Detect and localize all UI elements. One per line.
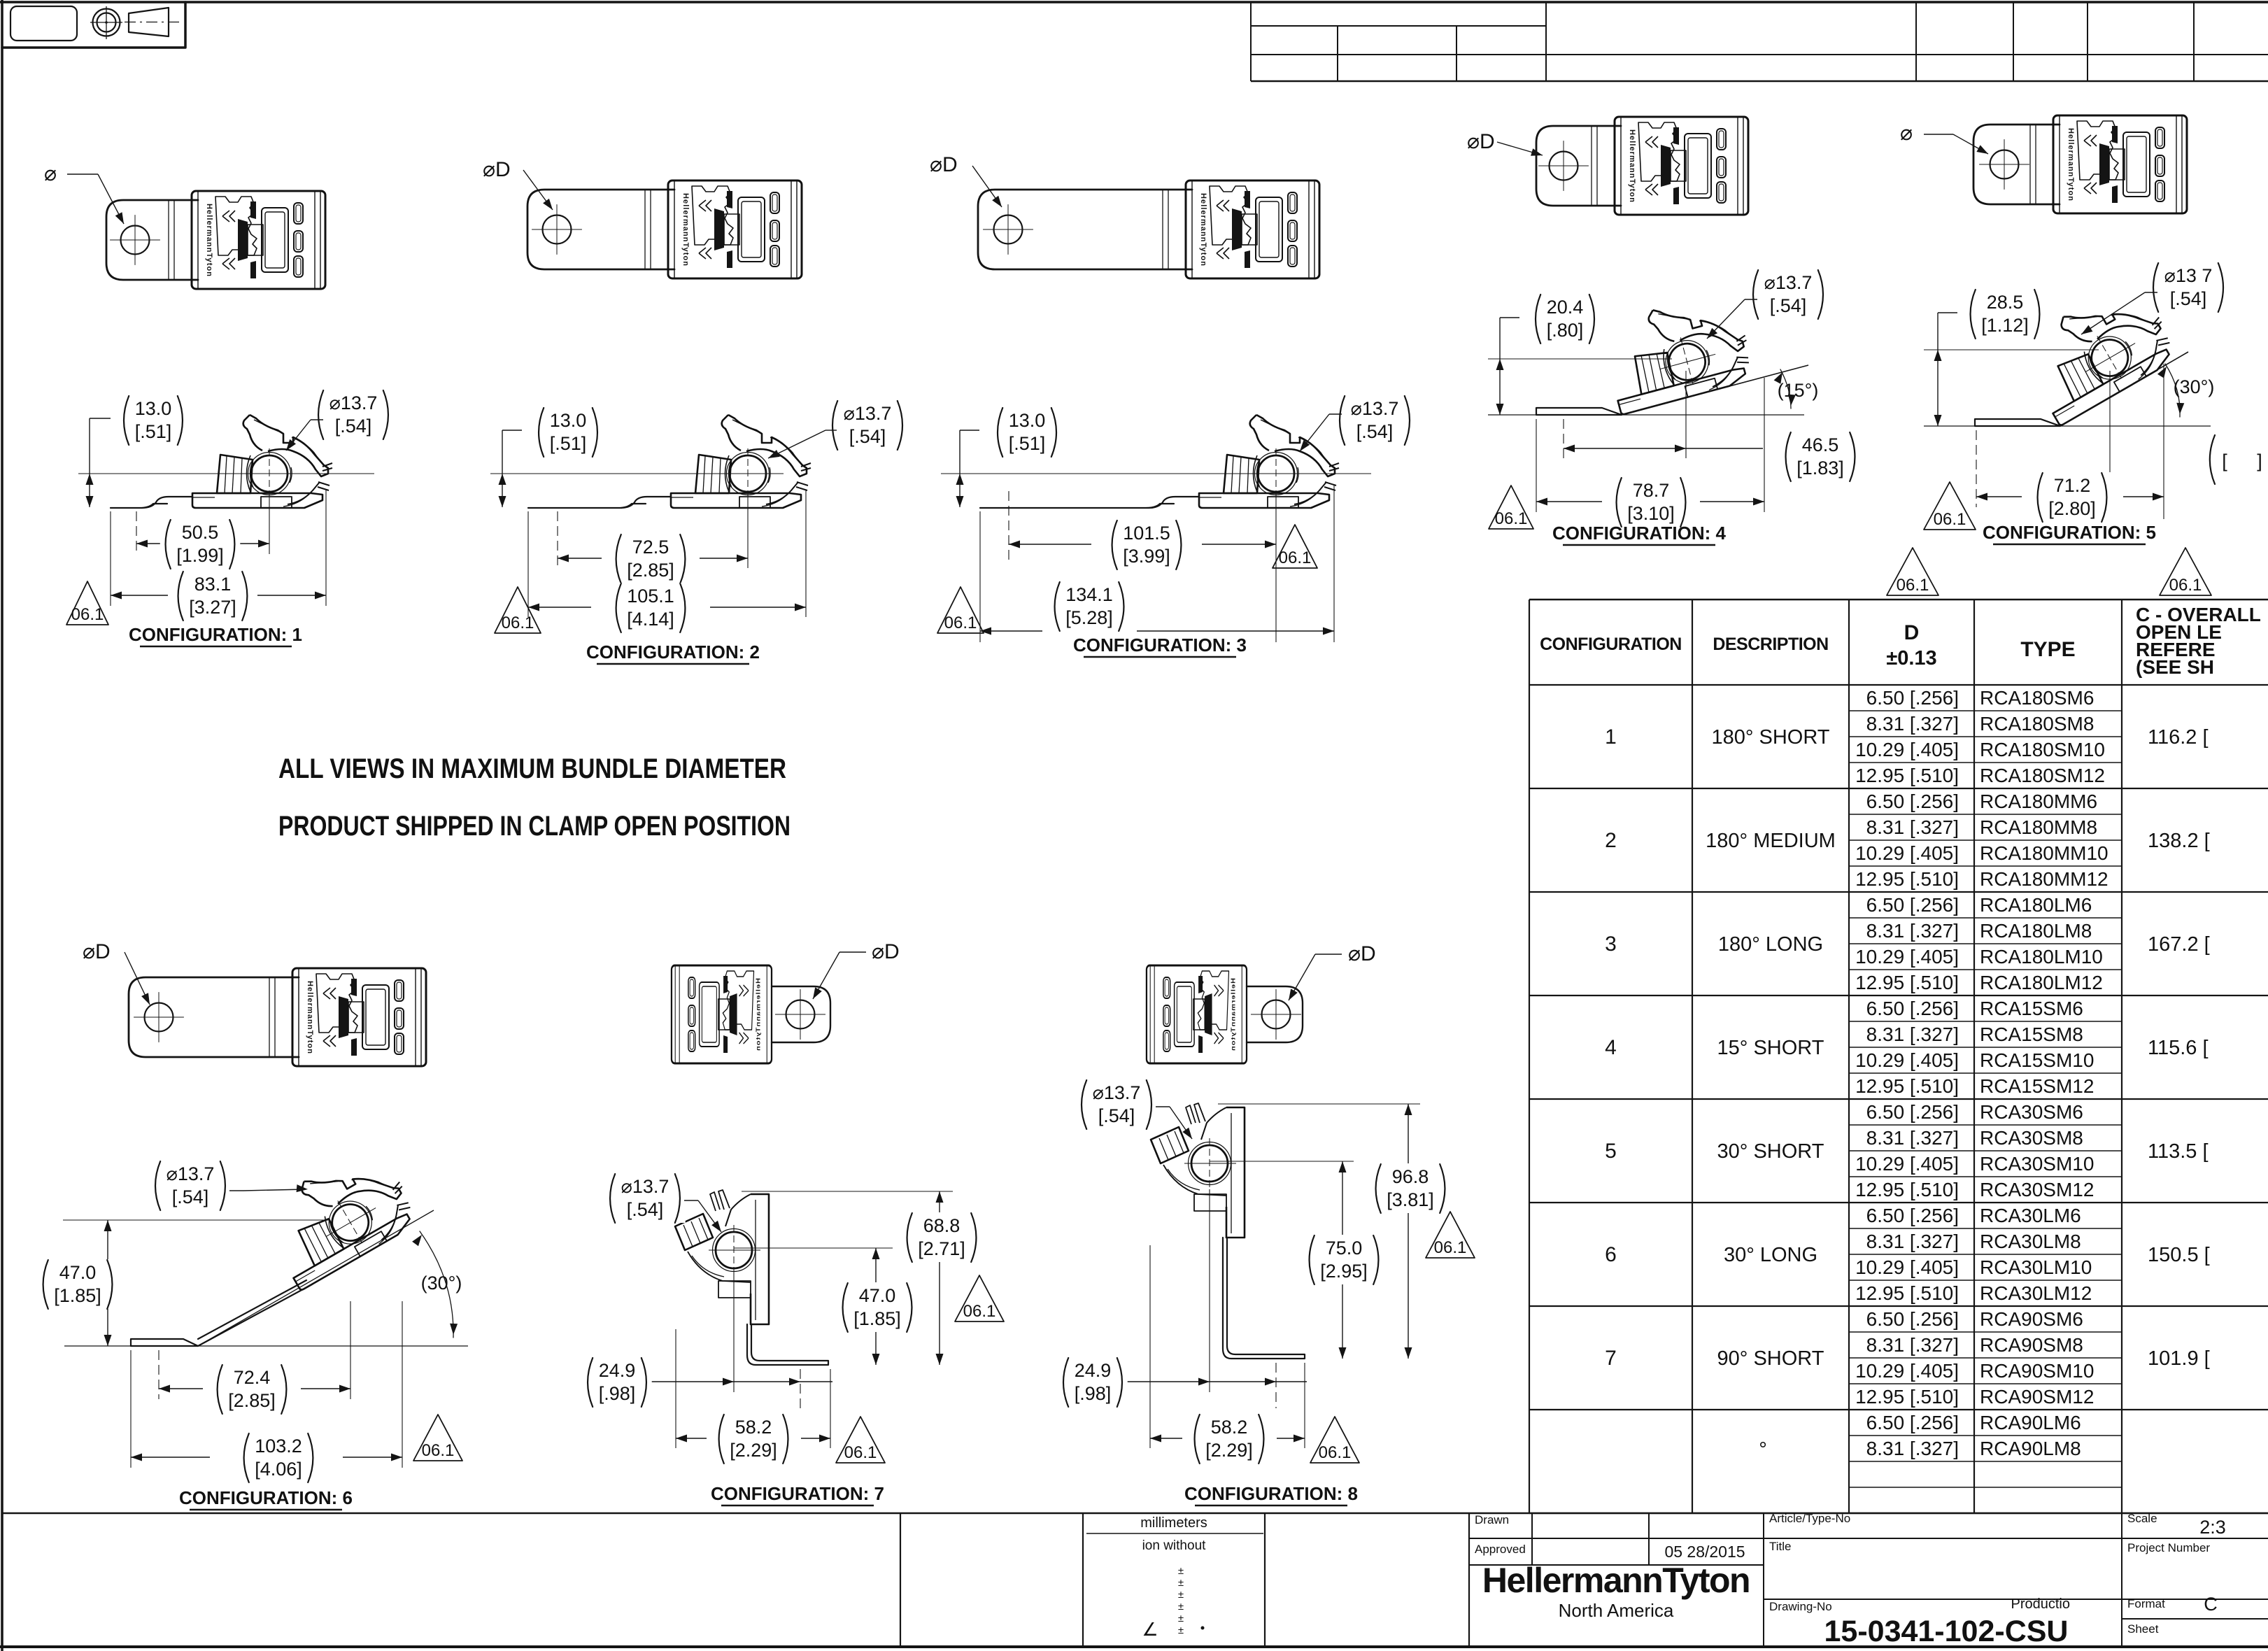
svg-text:[2.95]: [2.95] bbox=[1320, 1261, 1368, 1282]
svg-text:78.7: 78.7 bbox=[1633, 480, 1670, 501]
svg-text:06.1: 06.1 bbox=[422, 1441, 455, 1460]
svg-text:6.50 [.256]: 6.50 [.256] bbox=[1866, 894, 1959, 916]
svg-text:CONFIGURATION: 5: CONFIGURATION: 5 bbox=[1983, 522, 2156, 543]
svg-text:[.80]: [.80] bbox=[1547, 320, 1584, 341]
svg-text:Article/Type-No: Article/Type-No bbox=[1769, 1512, 1850, 1525]
svg-text:[1.85]: [1.85] bbox=[54, 1285, 101, 1306]
svg-text:10.29 [.405]: 10.29 [.405] bbox=[1855, 1256, 1959, 1278]
svg-text:12.95 [.510]: 12.95 [.510] bbox=[1855, 1282, 1959, 1304]
svg-text:6: 6 bbox=[1605, 1243, 1617, 1266]
svg-text:115.6 [: 115.6 [ bbox=[2148, 1037, 2209, 1059]
svg-text:RCA90SM12: RCA90SM12 bbox=[1980, 1386, 2094, 1408]
svg-text:[1.85]: [1.85] bbox=[853, 1308, 901, 1329]
svg-text:⌀D: ⌀D bbox=[1348, 942, 1376, 965]
svg-text:RCA180LM12: RCA180LM12 bbox=[1980, 972, 2103, 993]
svg-text:6.50 [.256]: 6.50 [.256] bbox=[1866, 791, 1959, 812]
svg-text:[4.06]: [4.06] bbox=[255, 1459, 302, 1480]
svg-text:RCA180MM8: RCA180MM8 bbox=[1980, 816, 2097, 838]
svg-text:(30°): (30°) bbox=[2174, 376, 2215, 397]
svg-text:180° MEDIUM: 180° MEDIUM bbox=[1706, 830, 1836, 852]
svg-text:12.95 [.510]: 12.95 [.510] bbox=[1855, 868, 1959, 890]
svg-text:8.31 [.327]: 8.31 [.327] bbox=[1866, 1127, 1959, 1149]
svg-text:Drawn: Drawn bbox=[1475, 1513, 1509, 1526]
svg-text:⌀13.7: ⌀13.7 bbox=[1764, 272, 1813, 293]
svg-text:North America: North America bbox=[1559, 1600, 1674, 1621]
svg-text:167.2 [: 167.2 [ bbox=[2148, 933, 2210, 956]
svg-text:±: ± bbox=[1178, 1601, 1184, 1613]
svg-text:75.0: 75.0 bbox=[1326, 1238, 1363, 1259]
svg-text:10.29 [.405]: 10.29 [.405] bbox=[1855, 739, 1959, 760]
svg-text:[.51]: [.51] bbox=[135, 421, 172, 442]
svg-text:⌀13 7: ⌀13 7 bbox=[2164, 265, 2213, 286]
svg-text:RCA30LM12: RCA30LM12 bbox=[1980, 1282, 2092, 1304]
svg-text:8.31 [.327]: 8.31 [.327] bbox=[1866, 1023, 1959, 1045]
svg-text:1: 1 bbox=[1605, 725, 1617, 749]
svg-text:[.51]: [.51] bbox=[1009, 433, 1046, 454]
svg-text:13.0: 13.0 bbox=[550, 410, 587, 431]
svg-text:138.2 [: 138.2 [ bbox=[2148, 830, 2210, 852]
svg-text:7: 7 bbox=[1605, 1347, 1617, 1370]
svg-text:±: ± bbox=[1178, 1577, 1184, 1589]
svg-text:±: ± bbox=[1178, 1565, 1184, 1577]
svg-text:Format: Format bbox=[2127, 1597, 2165, 1610]
svg-text:90° SHORT: 90° SHORT bbox=[1717, 1347, 1824, 1370]
svg-text:113.5 [: 113.5 [ bbox=[2148, 1140, 2209, 1163]
svg-text:134.1: 134.1 bbox=[1065, 584, 1113, 605]
svg-text:±: ± bbox=[1178, 1624, 1184, 1636]
svg-text:RCA15SM8: RCA15SM8 bbox=[1980, 1023, 2083, 1045]
svg-text:103.2: 103.2 bbox=[255, 1436, 302, 1457]
svg-text:2:3: 2:3 bbox=[2199, 1517, 2226, 1538]
svg-text:TYPE: TYPE bbox=[2020, 638, 2075, 661]
svg-text:⌀13.7: ⌀13.7 bbox=[844, 403, 892, 424]
svg-text:6.50 [.256]: 6.50 [.256] bbox=[1866, 1101, 1959, 1123]
svg-text:4: 4 bbox=[1605, 1036, 1617, 1059]
svg-text:RCA90LM8: RCA90LM8 bbox=[1980, 1438, 2081, 1459]
svg-text:CONFIGURATION: 7: CONFIGURATION: 7 bbox=[711, 1483, 884, 1504]
svg-text:millimeters: millimeters bbox=[1140, 1515, 1207, 1531]
svg-text:180° SHORT: 180° SHORT bbox=[1711, 726, 1829, 749]
svg-text:6.50 [.256]: 6.50 [.256] bbox=[1866, 998, 1959, 1019]
svg-text:RCA180SM10: RCA180SM10 bbox=[1980, 739, 2105, 760]
svg-text:68.8: 68.8 bbox=[923, 1215, 961, 1236]
svg-text:06.1: 06.1 bbox=[844, 1443, 877, 1462]
svg-text:[.54]: [.54] bbox=[1356, 421, 1394, 442]
svg-text:⌀13.7: ⌀13.7 bbox=[166, 1163, 215, 1184]
svg-text:[.54]: [.54] bbox=[849, 426, 886, 447]
svg-text:RCA90SM6: RCA90SM6 bbox=[1980, 1308, 2083, 1330]
svg-text:101.9 [: 101.9 [ bbox=[2148, 1347, 2210, 1370]
svg-text:6.50 [.256]: 6.50 [.256] bbox=[1866, 687, 1959, 709]
svg-text:72.4: 72.4 bbox=[234, 1367, 271, 1388]
svg-text:HellermannTyton: HellermannTyton bbox=[1482, 1561, 1750, 1600]
svg-text:[.54]: [.54] bbox=[1098, 1105, 1135, 1126]
svg-text:24.9: 24.9 bbox=[1075, 1360, 1112, 1381]
svg-text:8.31 [.327]: 8.31 [.327] bbox=[1866, 1334, 1959, 1356]
svg-text:3: 3 bbox=[1605, 933, 1617, 956]
svg-text:⌀D: ⌀D bbox=[483, 158, 511, 181]
svg-text:6.50 [.256]: 6.50 [.256] bbox=[1866, 1412, 1959, 1433]
svg-text:71.2: 71.2 bbox=[2054, 475, 2091, 496]
svg-text:96.8: 96.8 bbox=[1392, 1166, 1429, 1187]
svg-text:[1.99]: [1.99] bbox=[176, 545, 224, 566]
svg-text:CONFIGURATION: 6: CONFIGURATION: 6 bbox=[179, 1487, 353, 1508]
svg-text:±: ± bbox=[1178, 1613, 1184, 1624]
svg-text:10.29 [.405]: 10.29 [.405] bbox=[1855, 1360, 1959, 1382]
svg-text:12.95 [.510]: 12.95 [.510] bbox=[1855, 1179, 1959, 1200]
svg-text:[2.85]: [2.85] bbox=[228, 1390, 276, 1411]
svg-text:⌀: ⌀ bbox=[44, 162, 57, 185]
svg-text:58.2: 58.2 bbox=[1211, 1417, 1248, 1438]
svg-text:RCA180MM12: RCA180MM12 bbox=[1980, 868, 2108, 890]
svg-text:28.5: 28.5 bbox=[1987, 292, 2024, 313]
svg-text:CONFIGURATION: 4: CONFIGURATION: 4 bbox=[1552, 523, 1726, 544]
svg-text:5: 5 bbox=[1605, 1140, 1617, 1163]
svg-text:[2.71]: [2.71] bbox=[918, 1238, 965, 1259]
svg-text:RCA30LM10: RCA30LM10 bbox=[1980, 1256, 2092, 1278]
svg-text:ALL VIEWS IN MAXIMUM BUNDLE DI: ALL VIEWS IN MAXIMUM BUNDLE DIAMETER bbox=[278, 753, 786, 784]
svg-text:⌀13.7: ⌀13.7 bbox=[329, 392, 378, 413]
svg-text:(SEE SH: (SEE SH bbox=[2136, 656, 2214, 678]
svg-text:D: D bbox=[1904, 621, 1920, 644]
svg-text:⌀D: ⌀D bbox=[83, 940, 111, 963]
svg-text:06.1: 06.1 bbox=[1319, 1443, 1352, 1462]
svg-text:RCA30SM10: RCA30SM10 bbox=[1980, 1153, 2094, 1175]
svg-text:24.9: 24.9 bbox=[599, 1360, 636, 1381]
svg-text:RCA180SM12: RCA180SM12 bbox=[1980, 765, 2105, 786]
svg-text:PRODUCT SHIPPED IN CLAMP OPEN: PRODUCT SHIPPED IN CLAMP OPEN POSITION bbox=[278, 811, 791, 842]
svg-text:10.29 [.405]: 10.29 [.405] bbox=[1855, 946, 1959, 968]
svg-text:15° SHORT: 15° SHORT bbox=[1717, 1037, 1824, 1059]
svg-text:10.29 [.405]: 10.29 [.405] bbox=[1855, 1153, 1959, 1175]
svg-text:CONFIGURATION: 8: CONFIGURATION: 8 bbox=[1184, 1483, 1358, 1504]
svg-text:30° LONG: 30° LONG bbox=[1724, 1244, 1817, 1266]
svg-text:8.31 [.327]: 8.31 [.327] bbox=[1866, 816, 1959, 838]
svg-text:8.31 [.327]: 8.31 [.327] bbox=[1866, 713, 1959, 735]
svg-text:83.1: 83.1 bbox=[194, 574, 232, 595]
svg-text:6.50 [.256]: 6.50 [.256] bbox=[1866, 1205, 1959, 1226]
svg-text:[5.28]: [5.28] bbox=[1065, 607, 1113, 628]
svg-text:RCA180LM6: RCA180LM6 bbox=[1980, 894, 2092, 916]
svg-text:[1.83]: [1.83] bbox=[1796, 458, 1844, 479]
svg-text:[.98]: [.98] bbox=[1075, 1383, 1112, 1404]
svg-text:[.98]: [.98] bbox=[599, 1383, 636, 1404]
svg-text:RCA90SM8: RCA90SM8 bbox=[1980, 1334, 2083, 1356]
svg-text:13.0: 13.0 bbox=[135, 398, 172, 419]
svg-text:RCA90LM6: RCA90LM6 bbox=[1980, 1412, 2081, 1433]
svg-text:RCA180LM8: RCA180LM8 bbox=[1980, 920, 2092, 942]
svg-text:46.5: 46.5 bbox=[1802, 434, 1839, 455]
svg-text:⌀13.7: ⌀13.7 bbox=[1093, 1082, 1141, 1103]
svg-text:8.31 [.327]: 8.31 [.327] bbox=[1866, 1438, 1959, 1459]
svg-text:105.1: 105.1 bbox=[627, 586, 674, 607]
svg-text:150.5 [: 150.5 [ bbox=[2148, 1244, 2210, 1266]
svg-text:[2.85]: [2.85] bbox=[627, 560, 674, 581]
svg-text:Productio: Productio bbox=[2011, 1596, 2071, 1612]
svg-text:Approved: Approved bbox=[1475, 1543, 1526, 1556]
svg-text:180° LONG: 180° LONG bbox=[1718, 933, 1823, 956]
svg-text:58.2: 58.2 bbox=[735, 1417, 772, 1438]
svg-text:±: ± bbox=[1178, 1589, 1184, 1601]
svg-text:101.5: 101.5 bbox=[1123, 523, 1170, 544]
svg-text:[.54]: [.54] bbox=[2170, 288, 2207, 309]
svg-text:°: ° bbox=[1759, 1438, 1767, 1461]
svg-text:RCA30SM6: RCA30SM6 bbox=[1980, 1101, 2083, 1123]
svg-text:06.1: 06.1 bbox=[502, 614, 534, 632]
svg-text:(15°): (15°) bbox=[1778, 380, 1819, 401]
svg-text:[2.29]: [2.29] bbox=[730, 1440, 777, 1461]
svg-text:⌀: ⌀ bbox=[1900, 122, 1913, 145]
svg-text:[3.81]: [3.81] bbox=[1387, 1189, 1434, 1210]
svg-text:RCA180MM10: RCA180MM10 bbox=[1980, 842, 2108, 864]
svg-text:13.0: 13.0 bbox=[1009, 410, 1046, 431]
svg-text:RCA15SM12: RCA15SM12 bbox=[1980, 1075, 2094, 1097]
svg-text:Drawing-No: Drawing-No bbox=[1769, 1600, 1832, 1613]
svg-text:±0.13: ±0.13 bbox=[1886, 647, 1936, 669]
svg-text:10.29 [.405]: 10.29 [.405] bbox=[1855, 1049, 1959, 1071]
svg-text:30° SHORT: 30° SHORT bbox=[1717, 1140, 1824, 1163]
svg-text:⌀D: ⌀D bbox=[872, 940, 900, 963]
svg-text:[3.27]: [3.27] bbox=[189, 597, 236, 618]
svg-text:RCA30LM6: RCA30LM6 bbox=[1980, 1205, 2081, 1226]
svg-text:[.54]: [.54] bbox=[172, 1186, 209, 1207]
svg-text:06.1: 06.1 bbox=[944, 614, 977, 632]
svg-text:∠: ∠ bbox=[1142, 1619, 1158, 1640]
svg-text:ion without: ion without bbox=[1142, 1538, 1207, 1553]
svg-text:[1.12]: [1.12] bbox=[1981, 315, 2029, 336]
svg-text:⌀13.7: ⌀13.7 bbox=[621, 1176, 669, 1197]
svg-text:CONFIGURATION: 2: CONFIGURATION: 2 bbox=[586, 642, 760, 662]
svg-text:12.95 [.510]: 12.95 [.510] bbox=[1855, 972, 1959, 993]
svg-text:06.1: 06.1 bbox=[1495, 509, 1528, 528]
svg-text:50.5: 50.5 bbox=[182, 522, 219, 543]
svg-text:C: C bbox=[2204, 1594, 2218, 1615]
svg-text:06.1: 06.1 bbox=[963, 1302, 996, 1321]
svg-text:Scale: Scale bbox=[2127, 1512, 2157, 1525]
svg-text:6.50 [.256]: 6.50 [.256] bbox=[1866, 1308, 1959, 1330]
svg-text:RCA180MM6: RCA180MM6 bbox=[1980, 791, 2097, 812]
svg-text:RCA180SM6: RCA180SM6 bbox=[1980, 687, 2094, 709]
svg-text:DESCRIPTION: DESCRIPTION bbox=[1713, 635, 1828, 654]
svg-text:12.95 [.510]: 12.95 [.510] bbox=[1855, 1075, 1959, 1097]
svg-text:15-0341-102-CSU: 15-0341-102-CSU bbox=[1824, 1615, 2069, 1648]
svg-text:116.2 [: 116.2 [ bbox=[2148, 726, 2209, 749]
svg-text:06.1: 06.1 bbox=[71, 605, 104, 624]
svg-text:06.1: 06.1 bbox=[1279, 548, 1312, 567]
svg-text:[3.99]: [3.99] bbox=[1123, 546, 1170, 567]
svg-text:47.0: 47.0 bbox=[859, 1285, 896, 1306]
svg-text:Project Number: Project Number bbox=[2127, 1541, 2210, 1554]
svg-text:06.1: 06.1 bbox=[1897, 576, 1929, 595]
svg-text:[.54]: [.54] bbox=[335, 416, 372, 437]
svg-text:⌀13.7: ⌀13.7 bbox=[1351, 398, 1399, 419]
svg-text:[3.10]: [3.10] bbox=[1627, 503, 1675, 524]
svg-text:[2.80]: [2.80] bbox=[2048, 498, 2096, 519]
svg-text:[.51]: [.51] bbox=[550, 433, 587, 454]
svg-text:(30°): (30°) bbox=[421, 1273, 462, 1294]
svg-text:06.1: 06.1 bbox=[1434, 1238, 1467, 1257]
svg-text:RCA30SM8: RCA30SM8 bbox=[1980, 1127, 2083, 1149]
svg-text:47.0: 47.0 bbox=[59, 1262, 97, 1283]
svg-text:Sheet: Sheet bbox=[2127, 1622, 2159, 1636]
svg-text:[: [ bbox=[2222, 451, 2227, 472]
svg-text:12.95 [.510]: 12.95 [.510] bbox=[1855, 765, 1959, 786]
svg-text:[.54]: [.54] bbox=[627, 1199, 664, 1220]
svg-text:05 28/2015: 05 28/2015 bbox=[1664, 1543, 1745, 1561]
svg-text:RCA15SM6: RCA15SM6 bbox=[1980, 998, 2083, 1019]
svg-text:⌀D: ⌀D bbox=[930, 153, 958, 176]
svg-text:⌀D: ⌀D bbox=[1467, 130, 1495, 153]
svg-text:RCA30SM12: RCA30SM12 bbox=[1980, 1179, 2094, 1200]
svg-text:72.5: 72.5 bbox=[632, 537, 669, 558]
svg-text:CONFIGURATION: CONFIGURATION bbox=[1540, 635, 1682, 654]
svg-text:8.31 [.327]: 8.31 [.327] bbox=[1866, 920, 1959, 942]
svg-text:[.54]: [.54] bbox=[1770, 295, 1807, 316]
svg-text:RCA90SM10: RCA90SM10 bbox=[1980, 1360, 2094, 1382]
svg-text:[4.14]: [4.14] bbox=[627, 609, 674, 630]
svg-text:2: 2 bbox=[1605, 829, 1617, 852]
svg-text:RCA180LM10: RCA180LM10 bbox=[1980, 946, 2103, 968]
svg-text:RCA30LM8: RCA30LM8 bbox=[1980, 1231, 2081, 1252]
svg-text:20.4: 20.4 bbox=[1547, 297, 1584, 318]
svg-text:RCA15SM10: RCA15SM10 bbox=[1980, 1049, 2094, 1071]
svg-text:06.1: 06.1 bbox=[2169, 576, 2202, 595]
svg-text:RCA180SM8: RCA180SM8 bbox=[1980, 713, 2094, 735]
svg-text:06.1: 06.1 bbox=[1934, 510, 1966, 529]
svg-text:]: ] bbox=[2257, 451, 2262, 472]
svg-text:12.95 [.510]: 12.95 [.510] bbox=[1855, 1386, 1959, 1408]
svg-text:10.29 [.405]: 10.29 [.405] bbox=[1855, 842, 1959, 864]
svg-text:[2.29]: [2.29] bbox=[1205, 1440, 1253, 1461]
svg-text:CONFIGURATION: 1: CONFIGURATION: 1 bbox=[129, 624, 302, 645]
svg-text:Title: Title bbox=[1769, 1540, 1792, 1553]
svg-text:CONFIGURATION: 3: CONFIGURATION: 3 bbox=[1073, 635, 1247, 656]
svg-text:8.31 [.327]: 8.31 [.327] bbox=[1866, 1231, 1959, 1252]
